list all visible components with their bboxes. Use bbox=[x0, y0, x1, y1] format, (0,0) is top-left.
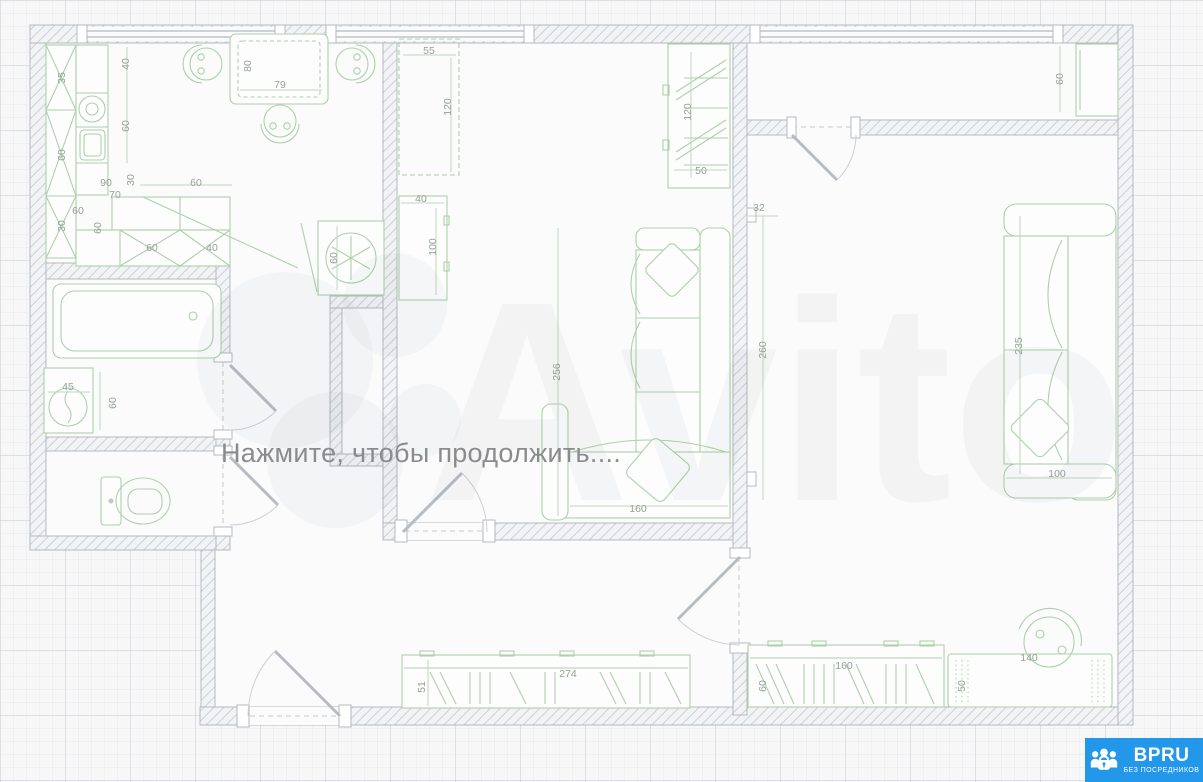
balcony-window bbox=[750, 25, 1063, 43]
dim-label: 32 bbox=[753, 202, 765, 214]
dim-label: 60 bbox=[72, 205, 84, 217]
dim-label: 51 bbox=[416, 681, 428, 693]
dim-label: 50 bbox=[956, 680, 968, 692]
wardrobe bbox=[748, 641, 944, 707]
dim-label: 120 bbox=[442, 98, 454, 116]
dim-label: 70 bbox=[109, 189, 121, 201]
dim-label: 60 bbox=[1054, 73, 1066, 85]
dim-label: 40 bbox=[120, 58, 132, 70]
dim-label: 60 bbox=[190, 177, 202, 189]
dim-label: 55 bbox=[423, 45, 435, 57]
dim-label: 60 bbox=[757, 680, 769, 692]
dim-label: 60 bbox=[120, 120, 132, 132]
badge-brand: BPRU bbox=[1134, 746, 1190, 765]
dim-label: 50 bbox=[695, 165, 707, 177]
dim-label: 45 bbox=[62, 381, 74, 393]
dim-label: 140 bbox=[1020, 652, 1038, 664]
dim-label: 90 bbox=[100, 177, 112, 189]
washing-machine-icon bbox=[44, 368, 93, 433]
balcony-cabinet bbox=[1076, 44, 1118, 116]
dim-label: 60 bbox=[56, 149, 68, 161]
dim-label: 60 bbox=[107, 397, 119, 409]
dim-label: 40 bbox=[206, 242, 218, 254]
floor-plan: 35 60 30 40 60 90 70 30 60 60 60 60 40 8… bbox=[0, 0, 1203, 782]
dim-label: 80 bbox=[242, 60, 254, 72]
hall-wardrobe bbox=[402, 651, 690, 708]
living-window bbox=[326, 25, 534, 43]
dim-label: 160 bbox=[835, 660, 853, 672]
bpru-badge: BPRU БЕЗ ПОСРЕДНИКОВ bbox=[1085, 738, 1203, 782]
dim-label: 40 bbox=[415, 193, 427, 205]
avito-watermark: Avito bbox=[197, 243, 1126, 561]
screenshot-root: 35 60 30 40 60 90 70 30 60 60 60 60 40 8… bbox=[0, 0, 1203, 782]
dim-label: 30 bbox=[56, 220, 68, 232]
watermark-brand-text: Avito bbox=[424, 243, 1126, 561]
continue-message[interactable]: Нажмите, чтобы продолжить.... bbox=[221, 438, 621, 469]
dim-label: 120 bbox=[682, 103, 694, 121]
people-lock-icon bbox=[1089, 747, 1119, 774]
dim-label: 30 bbox=[125, 174, 137, 186]
dim-label: 274 bbox=[559, 668, 577, 680]
dim-label: 35 bbox=[56, 72, 68, 84]
bathtub-icon bbox=[53, 284, 221, 358]
dim-label: 60 bbox=[146, 242, 158, 254]
dim-label: 60 bbox=[328, 252, 340, 264]
hall-furniture bbox=[402, 651, 690, 708]
badge-tagline: БЕЗ ПОСРЕДНИКОВ bbox=[1124, 767, 1200, 774]
dim-label: 79 bbox=[274, 79, 286, 91]
dim-label: 60 bbox=[92, 222, 104, 234]
